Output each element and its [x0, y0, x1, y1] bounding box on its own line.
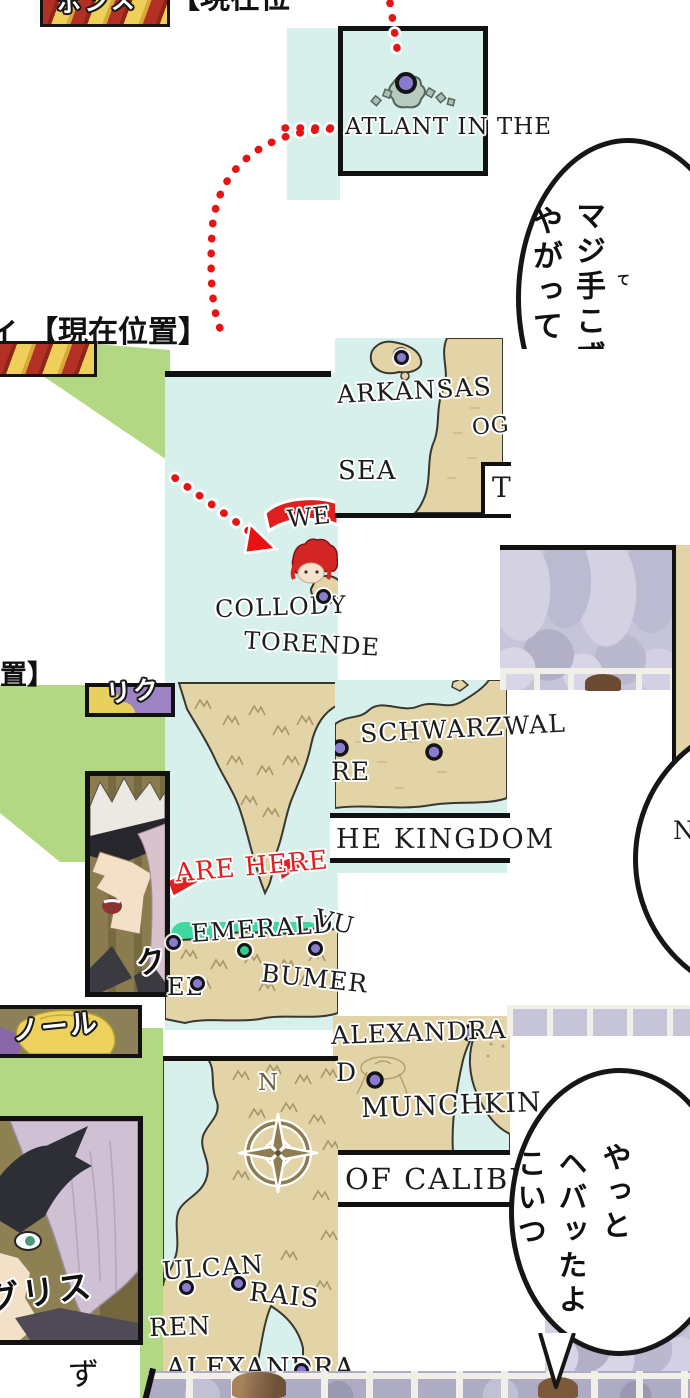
- marker-ulcan: [179, 1280, 194, 1295]
- map-main-top-border: [165, 371, 331, 377]
- map-label-munchkin: MUNCHKIN: [361, 1089, 543, 1122]
- map-sliver-top: [287, 28, 340, 200]
- compass-rose: [239, 1114, 317, 1192]
- bottom-crowd-strip: [148, 1371, 690, 1398]
- bottom-railing-bar: [148, 1373, 690, 1379]
- kingdom-name-box: T: [481, 462, 511, 518]
- banner-mid: [0, 341, 97, 377]
- marker-arkansas: [394, 350, 409, 365]
- map-label-n-fragment: N: [673, 818, 690, 843]
- kingdom-banner-sea-sliver: [330, 863, 507, 873]
- map-label-ren: REN: [149, 1313, 212, 1340]
- bottom-head-left: [232, 1372, 286, 1398]
- label-ku-fragment: ク: [133, 945, 169, 981]
- map-label-re: RE: [331, 759, 370, 784]
- bubble-top-text-left: やがって: [529, 205, 559, 345]
- bubble-bottom-text-left: こいつ: [515, 1148, 544, 1250]
- marker-el: [190, 976, 205, 991]
- marker-emerald-right: [308, 941, 323, 956]
- kingdom-banner: HE KINGDOM: [330, 813, 510, 863]
- map-label-t: T: [492, 474, 512, 502]
- marker-collody: [316, 589, 331, 604]
- map-label-torende: TORENDE: [243, 628, 380, 659]
- label-riku: リク: [105, 677, 161, 707]
- speech-bubble-bottom-tail: [536, 1333, 582, 1391]
- manga-map-page: ATLANT IN THE: [0, 0, 690, 1398]
- speech-bubble-top-container: マジ手こず て やがって: [503, 133, 690, 349]
- map-label-alexandra-upper: ALEXANDRA: [331, 1017, 507, 1048]
- compass-map-top-border: [163, 1056, 338, 1061]
- bubble-bottom-text-mid: ヘバッたよ: [556, 1148, 585, 1318]
- bubble-bottom-text-right: やっと: [600, 1142, 629, 1244]
- map-label-rais: RAIS: [248, 1279, 321, 1312]
- red-chibi-character: [292, 539, 337, 583]
- map-label-ulcan: ULCAN: [161, 1251, 264, 1283]
- label-zu-fragment: ず: [68, 1360, 99, 1391]
- map-label-we: WE: [286, 503, 332, 531]
- speech-bubble-right-partial: [633, 716, 690, 1002]
- map-label-compass-n: N: [258, 1072, 279, 1095]
- spectator-head: [585, 674, 621, 691]
- banner-top-text: ボンス: [56, 0, 138, 16]
- map-label-d: D: [336, 1060, 357, 1085]
- map-label-kingdom: HE KINGDOM: [336, 826, 555, 853]
- bubble-top-furigana: て: [615, 273, 628, 286]
- green-backdrop-strip: [140, 1028, 163, 1398]
- banner-top: ボンス: [40, 0, 170, 27]
- map-label-sea: SEA: [338, 458, 397, 484]
- crowd-railing-strip: [507, 1005, 690, 1036]
- title-current-fragment: 置】: [0, 662, 54, 689]
- caliburn-banner: OF CALIBURN: [333, 1150, 510, 1207]
- crowd-panel: [500, 545, 672, 690]
- title-current-top: 【現在位: [170, 0, 290, 14]
- map-label-arkansas: ARKANSAS: [336, 374, 492, 407]
- map-label-og: OG: [471, 414, 510, 439]
- bubble-top-text-right: マジ手こず: [572, 200, 602, 349]
- marker-rais: [231, 1276, 246, 1291]
- marker-emerald-left: [166, 935, 181, 950]
- atlant-map-panel: [338, 26, 488, 176]
- marker-emerald-city: [237, 943, 252, 958]
- atlant-island-art: [343, 31, 483, 171]
